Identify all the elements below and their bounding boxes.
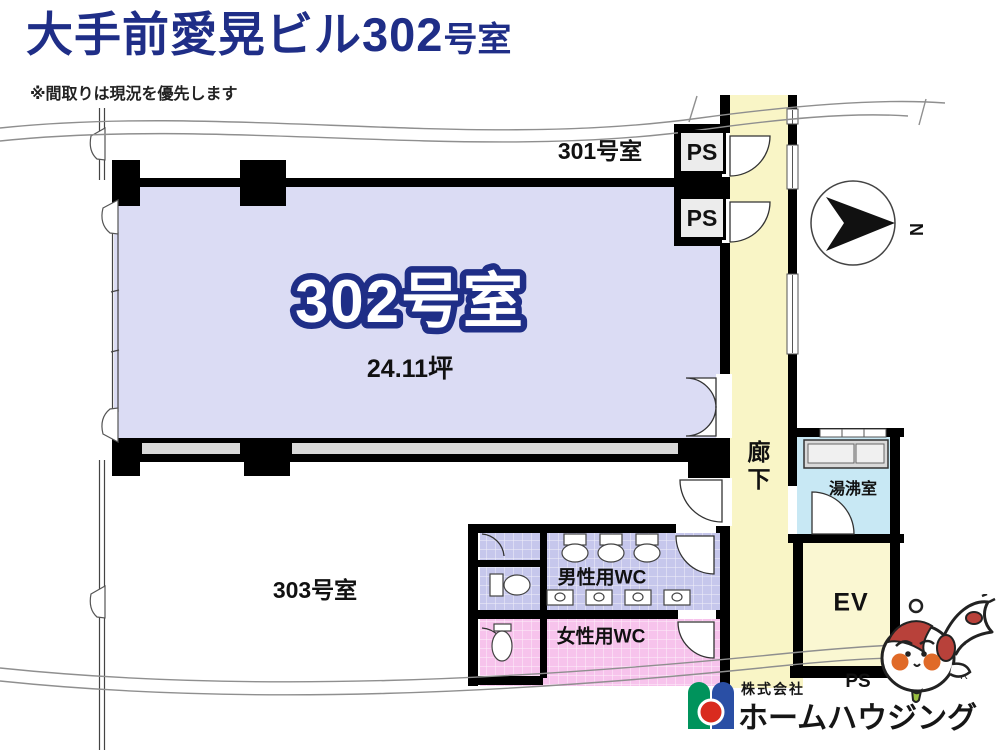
corridor-windows <box>787 109 886 437</box>
room-301-label: 301号室 <box>558 132 642 166</box>
mascot-cheek <box>892 654 909 671</box>
room-303-label: 303号室 <box>273 571 357 605</box>
compass: N <box>811 181 926 265</box>
column-top-mid <box>240 160 286 206</box>
mascot-red-patch <box>937 635 955 661</box>
column-bottom-left <box>112 438 140 476</box>
floorplan-drawing: N 302号室 <box>0 0 1000 750</box>
pipe-space-1-label: PS <box>687 139 718 166</box>
sink <box>634 544 660 562</box>
page-title: 大手前愛晃ビル302号室 <box>26 10 511 59</box>
toilet <box>504 575 530 595</box>
column-bottom-right <box>688 438 730 478</box>
corridor-label: 廊下 <box>740 440 774 494</box>
page-title-main: 大手前愛晃ビル302 <box>26 8 443 61</box>
pipe-space-1: PS <box>678 130 726 174</box>
wc-vestibule-door <box>680 480 722 522</box>
mascot-red-patch <box>966 612 982 624</box>
kitchenette-counter <box>804 440 888 468</box>
window-strips <box>142 443 678 454</box>
mascot-cheek <box>924 654 941 671</box>
column-top-left <box>112 160 140 206</box>
north-arrow-icon <box>826 197 895 251</box>
logo-red-dot <box>699 700 723 724</box>
toilet <box>492 631 512 661</box>
sink <box>562 544 588 562</box>
left-window-wall <box>90 108 119 750</box>
womens-stall-wall <box>540 618 547 678</box>
pipe-space-2: PS <box>678 196 726 240</box>
page-title-suffix: 号室 <box>443 21 511 59</box>
room-302-area: 24.11坪 <box>367 349 453 385</box>
room-302-label: 302号室 <box>295 268 525 335</box>
mascot-topknot <box>910 600 922 612</box>
column-bottom-mid <box>244 438 290 476</box>
womens-wc-label: 女性用WC <box>557 622 646 649</box>
company-logo-mark <box>686 679 736 731</box>
floorplan-page: { "header": { "title_main": "大手前愛晃ビル302"… <box>0 0 1000 750</box>
disclaimer-note: ※間取りは現況を優先します <box>30 80 238 104</box>
mens-wc-label: 男性用WC <box>558 563 647 590</box>
pipe-space-2-label: PS <box>687 205 718 232</box>
koi-mascot-icon <box>856 594 998 706</box>
sink <box>598 544 624 562</box>
kitchenette-label: 湯沸室 <box>829 475 877 499</box>
compass-north-label: N <box>906 223 926 236</box>
